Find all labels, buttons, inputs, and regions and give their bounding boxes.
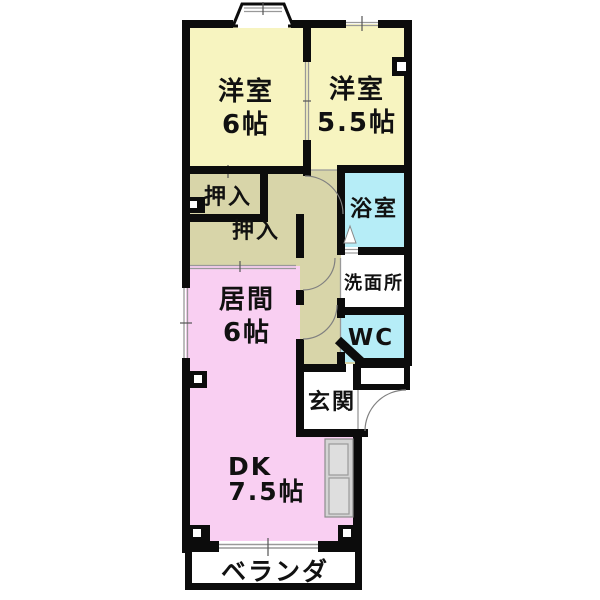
- bedroom2-size-label: 5.5帖: [317, 108, 397, 138]
- balcony-label: ベランダ: [221, 557, 329, 586]
- floor-plan-drawing: 洋室 6帖 洋室 5.5帖 押入 押入 浴室 洗面所 WC 居間 6帖 玄関 D…: [0, 0, 600, 600]
- entrance-label: 玄関: [308, 389, 356, 415]
- floor-plan-page: 洋室 6帖 洋室 5.5帖 押入 押入 浴室 洗面所 WC 居間 6帖 玄関 D…: [0, 0, 600, 600]
- bath-label: 浴室: [350, 196, 398, 222]
- bay-window: [233, 2, 293, 28]
- washroom-label: 洗面所: [344, 272, 404, 294]
- living-size-label: 6帖: [223, 318, 271, 348]
- kitchen-counter: [325, 439, 353, 517]
- living-name-label: 居間: [219, 285, 275, 315]
- closet-lower-label: 押入: [232, 218, 280, 244]
- bedroom1-name-label: 洋室: [218, 76, 274, 107]
- shoe-cabinet: [358, 365, 407, 387]
- bedroom2-name-label: 洋室: [329, 74, 385, 105]
- closet-upper-label: 押入: [204, 184, 252, 210]
- wc-label: WC: [348, 325, 394, 351]
- bedroom1-size-label: 6帖: [222, 110, 270, 140]
- dk-size-label: 7.5帖: [228, 477, 305, 506]
